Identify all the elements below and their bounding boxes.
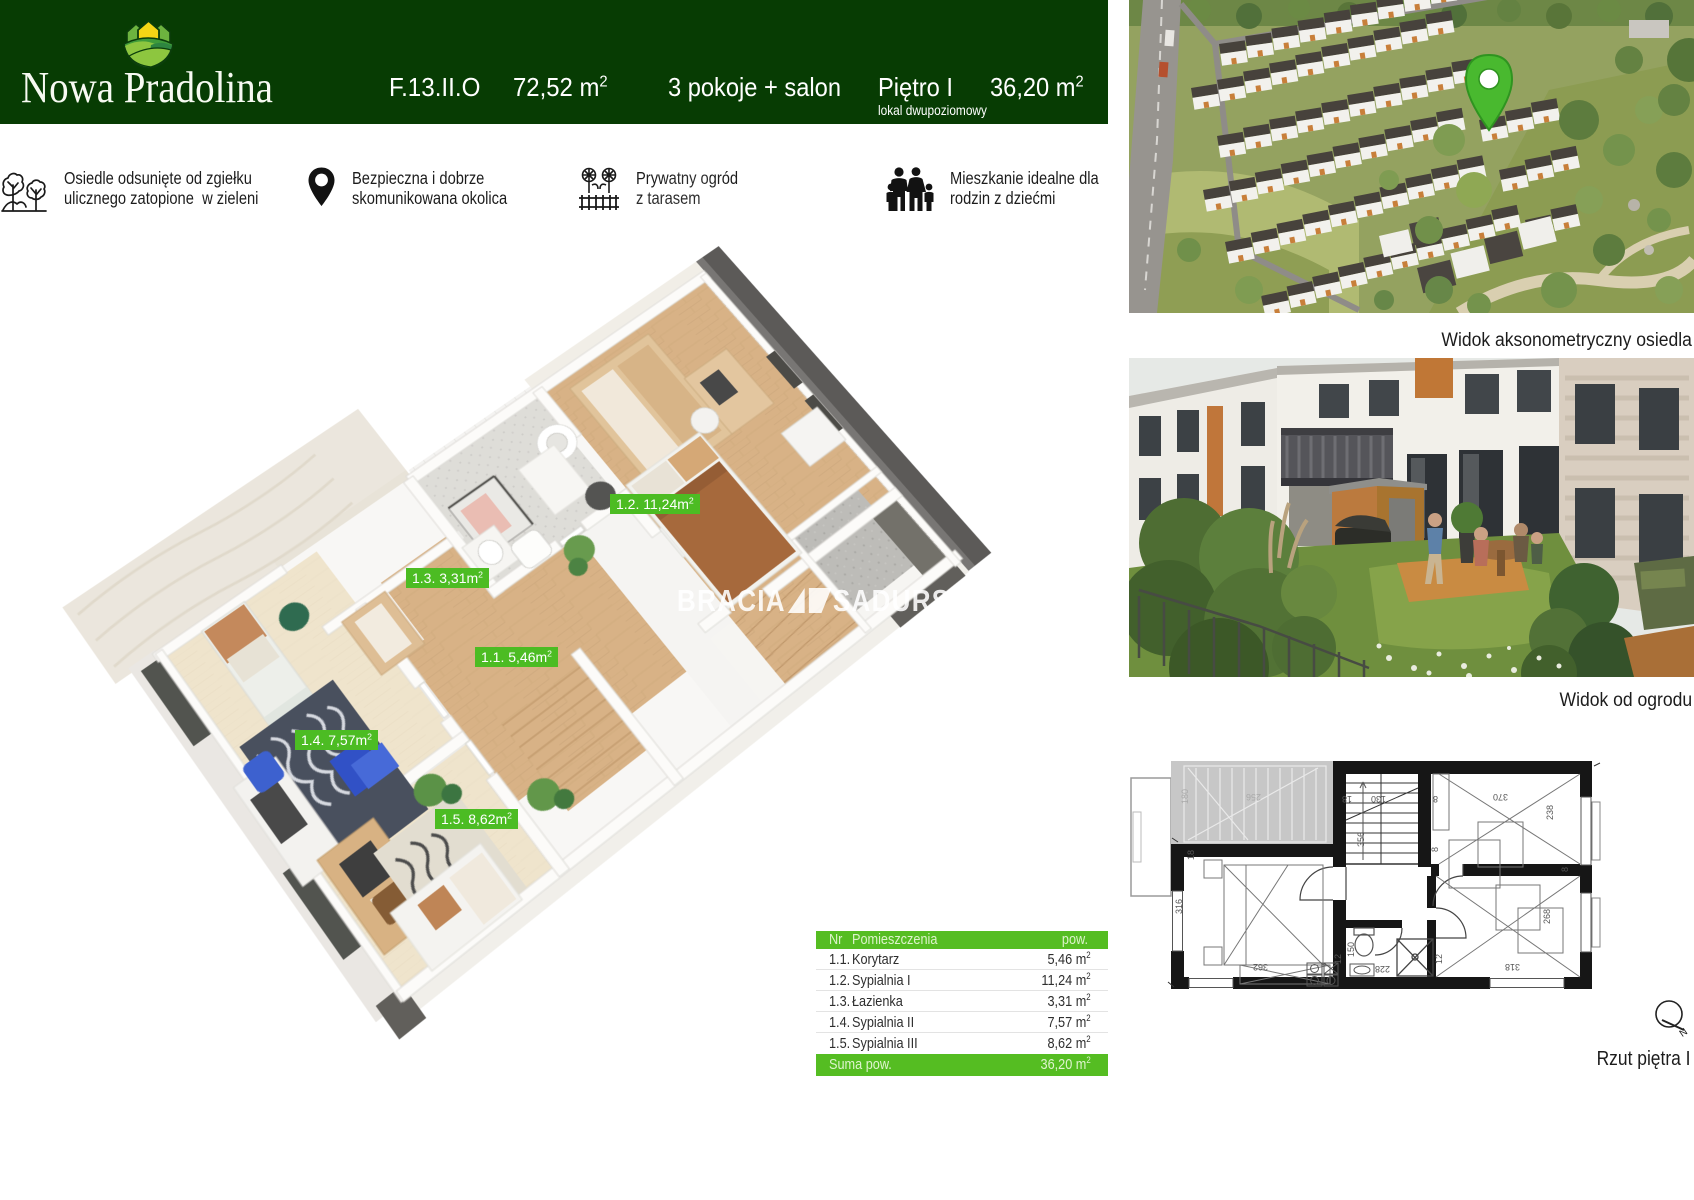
svg-text:18: 18: [1342, 794, 1352, 804]
svg-text:256: 256: [1246, 792, 1261, 802]
svg-text:8: 8: [1560, 867, 1570, 872]
svg-text:150: 150: [1346, 942, 1356, 957]
svg-text:228: 228: [1375, 964, 1390, 974]
svg-text:370: 370: [1493, 792, 1508, 802]
svg-text:12: 12: [1434, 954, 1444, 964]
svg-text:18: 18: [1186, 850, 1196, 860]
svg-text:318: 318: [1505, 962, 1520, 972]
svg-text:356: 356: [1356, 832, 1366, 847]
svg-text:N: N: [1678, 1027, 1690, 1040]
svg-text:8: 8: [1433, 794, 1438, 804]
svg-text:316: 316: [1174, 899, 1184, 914]
svg-text:130: 130: [1371, 794, 1386, 804]
svg-text:238: 238: [1545, 805, 1555, 820]
svg-text:8: 8: [1430, 847, 1440, 852]
svg-text:180: 180: [1180, 789, 1190, 804]
svg-text:362: 362: [1253, 962, 1268, 972]
svg-text:268: 268: [1542, 909, 1552, 924]
svg-text:12: 12: [1333, 954, 1343, 964]
